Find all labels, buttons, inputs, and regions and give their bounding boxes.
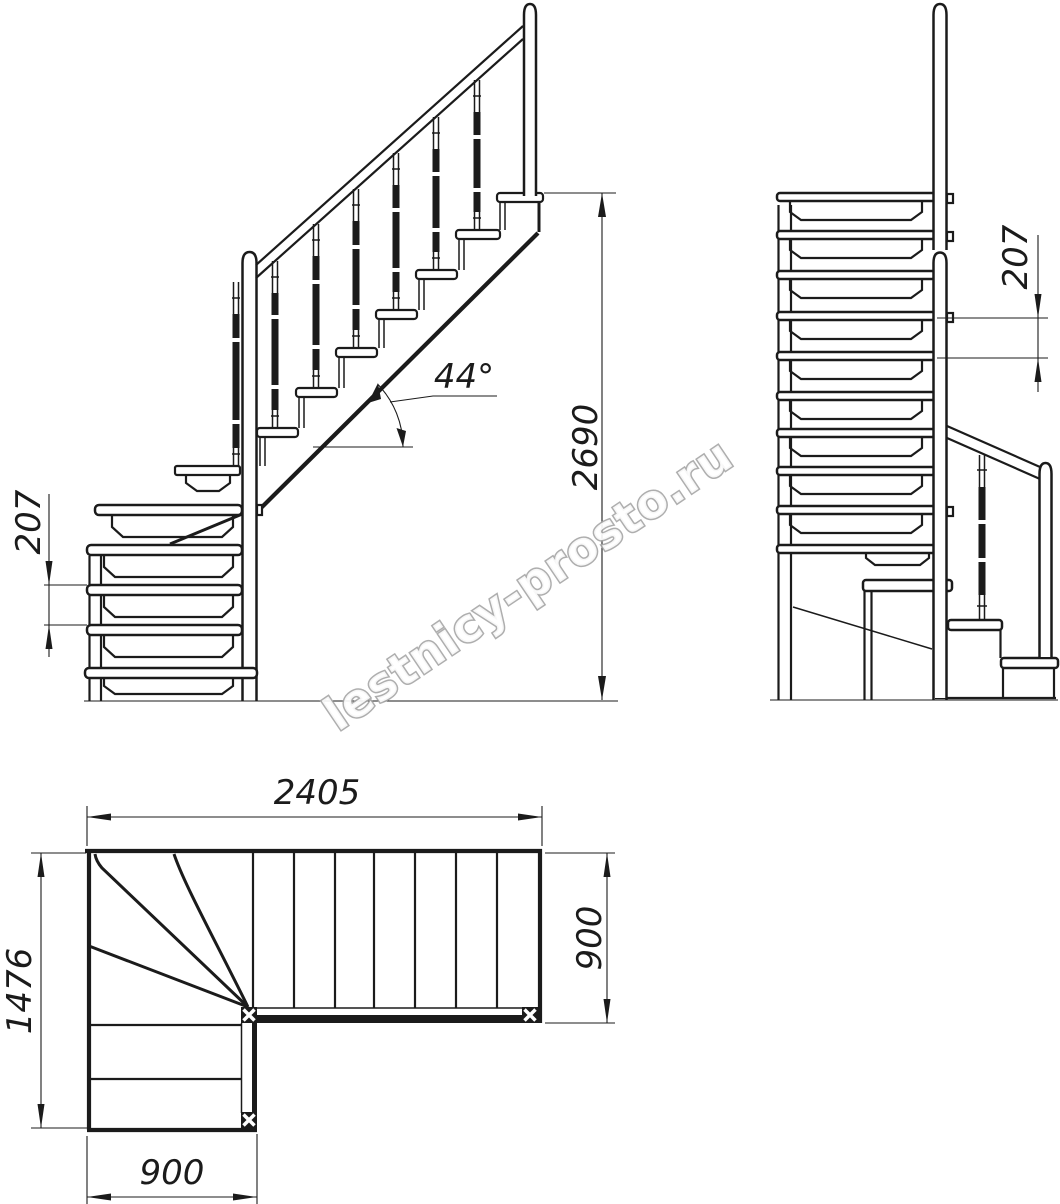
lower-newel-post bbox=[1040, 463, 1052, 658]
angle-annotation: 44° bbox=[313, 357, 497, 447]
baluster bbox=[977, 455, 987, 620]
plan-length-label: 2405 bbox=[274, 773, 361, 813]
plan-balustrade-band bbox=[242, 1023, 255, 1113]
handrail bbox=[256, 26, 523, 278]
baluster bbox=[352, 189, 360, 348]
dimension-front-rise: 207 bbox=[9, 489, 87, 657]
plan-view: 2405 900 1476 900 bbox=[0, 773, 615, 1204]
top-newel-post bbox=[524, 4, 536, 196]
dimension-plan-flight-width: 900 bbox=[545, 853, 615, 1023]
winder-tread bbox=[175, 466, 240, 491]
dimension-plan-length: 2405 bbox=[87, 773, 542, 846]
dimension-front-height: 2690 bbox=[544, 193, 616, 700]
drawing-sheet: 44° 207 2690 bbox=[0, 0, 1060, 1204]
plan-winder-lines bbox=[89, 854, 248, 1007]
side-rise-label: 207 bbox=[996, 224, 1036, 289]
plan-newel-post bbox=[241, 1007, 257, 1023]
stair-technical-drawing: 44° 207 2690 bbox=[0, 0, 1060, 1204]
plan-newel-post bbox=[241, 1112, 257, 1128]
baluster bbox=[392, 153, 400, 310]
dimension-plan-lower-width: 900 bbox=[87, 1134, 257, 1204]
column-newel-posts bbox=[934, 4, 954, 700]
plan-newel-post bbox=[522, 1007, 538, 1023]
plan-lower-treads bbox=[89, 1025, 241, 1079]
baluster bbox=[432, 117, 440, 270]
baluster bbox=[232, 282, 240, 466]
stringer-line bbox=[793, 607, 932, 649]
side-elevation-view: 207 bbox=[770, 4, 1058, 700]
side-handrail bbox=[947, 426, 1040, 479]
watermark: lestnicy-prosto.ru bbox=[314, 428, 742, 741]
plan-flight-width-label: 900 bbox=[570, 906, 610, 971]
plan-outline bbox=[85, 849, 542, 1130]
baluster bbox=[271, 261, 279, 428]
plan-lower-width-label: 900 bbox=[140, 1153, 205, 1193]
plan-depth-label: 1476 bbox=[0, 948, 40, 1035]
angle-label: 44° bbox=[434, 357, 494, 397]
front-rise-label: 207 bbox=[9, 489, 49, 554]
baluster bbox=[473, 80, 481, 230]
front-height-label: 2690 bbox=[566, 404, 606, 491]
dimension-plan-depth: 1476 bbox=[0, 853, 89, 1128]
side-tread-stack bbox=[777, 193, 935, 565]
side-lower-steps bbox=[863, 580, 1058, 700]
plan-stringer-band bbox=[253, 1008, 523, 1019]
bottom-step-board bbox=[85, 668, 257, 678]
middle-newel-post bbox=[243, 252, 263, 701]
baluster bbox=[312, 224, 320, 388]
plan-flight-risers bbox=[253, 853, 497, 1008]
dimension-side-rise: 207 bbox=[937, 224, 1048, 392]
